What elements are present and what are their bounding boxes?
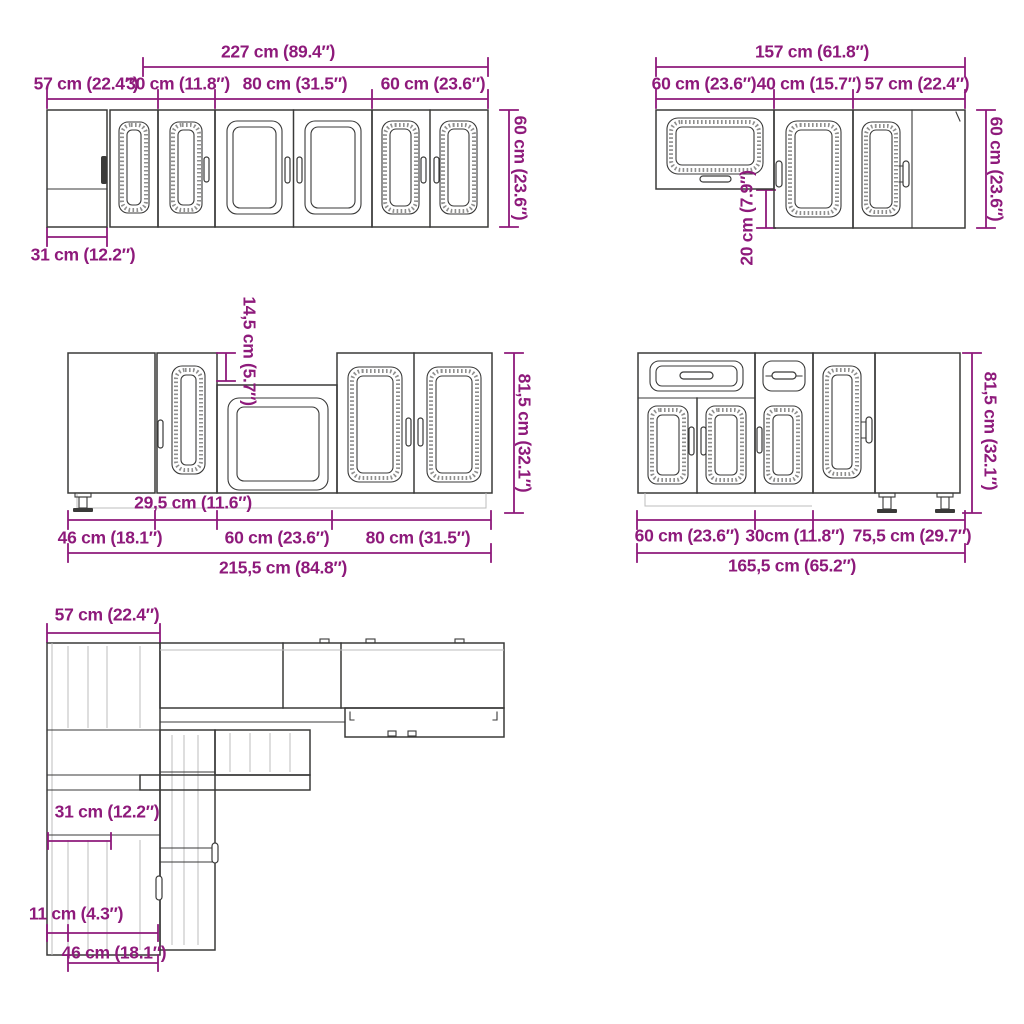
dim-label-wallcorner-drop: 20 cm (7.9″) (737, 170, 758, 265)
dim-label-basecorner-total: 165,5 cm (65.2″) (728, 556, 856, 577)
dim-label-baserow-seg2: 60 cm (23.6″) (225, 528, 330, 549)
dim-label-baserow-height: 81,5 cm (32.1″) (514, 374, 535, 493)
dim-label-wallrow-total: 227 cm (89.4″) (221, 42, 335, 63)
dim-label-wallrow-corner: 31 cm (12.2″) (31, 245, 136, 266)
dim-label-baserow-narrow: 29,5 cm (11.6″) (134, 493, 252, 514)
dim-label-wallcorner-seg2: 40 cm (15.7″) (757, 74, 862, 95)
dim-label-wallrow-height: 60 cm (23.6″) (510, 116, 531, 221)
dim-label-basecorner-seg2: 30cm (11.8″) (745, 526, 844, 547)
dim-label-plan-small: 11 cm (4.3″) (29, 904, 123, 925)
dim-label-wallcorner-total: 157 cm (61.8″) (755, 42, 869, 63)
dim-label-basecorner-seg1: 60 cm (23.6″) (635, 526, 740, 547)
dim-label-wallcorner-seg3: 57 cm (22.4″) (865, 74, 970, 95)
dim-label-wallcorner-height: 60 cm (23.6″) (986, 117, 1007, 222)
dim-label-plan-mid: 31 cm (12.2″) (55, 802, 160, 823)
dim-label-basecorner-height: 81,5 cm (32.1″) (980, 372, 1001, 491)
dim-label-plan-top: 57 cm (22.4″) (55, 605, 160, 626)
dim-label-baserow-seg3: 80 cm (31.5″) (366, 528, 471, 549)
technical-dimension-sheet: 227 cm (89.4″) 57 cm (22.4″) 30 cm (11.8… (0, 0, 1024, 1024)
dim-label-wallcorner-seg1: 60 cm (23.6″) (652, 74, 757, 95)
dim-label-plan-bottom: 46 cm (18.1″) (62, 943, 167, 964)
dim-label-basecorner-seg3: 75,5 cm (29.7″) (853, 526, 972, 547)
dim-label-wallrow-seg1: 57 cm (22.4″) (34, 74, 139, 95)
dim-label-wallrow-seg3: 80 cm (31.5″) (243, 74, 348, 95)
dim-label-baserow-seg1: 46 cm (18.1″) (58, 528, 163, 549)
dim-label-wallrow-seg2: 30 cm (11.8″) (126, 74, 230, 95)
dim-label-baserow-total: 215,5 cm (84.8″) (219, 558, 347, 579)
dim-label-wallrow-seg4: 60 cm (23.6″) (381, 74, 486, 95)
dim-label-baserow-strip: 14,5 cm (5.7″) (239, 296, 260, 405)
